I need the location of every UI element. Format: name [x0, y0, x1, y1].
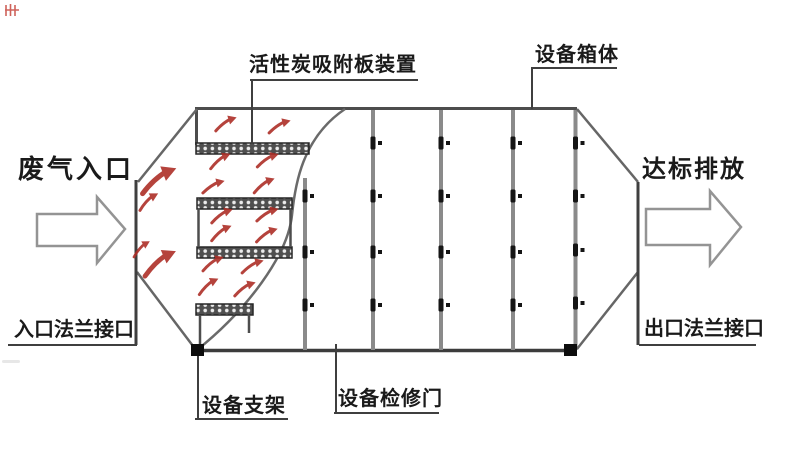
carbon-plate	[197, 247, 292, 258]
inlet-funnel	[137, 109, 197, 350]
flow-arrow-icon	[196, 276, 221, 295]
label-compliant-discharge: 达标排放	[642, 156, 746, 182]
diagram-canvas: 废气入口 活性炭吸附板装置 设备箱体 达标排放 入口法兰接口 出口法兰接口 设备…	[0, 0, 808, 465]
carbon-plate	[196, 143, 309, 154]
label-waste-gas-inlet: 废气入口	[18, 156, 134, 185]
door-hinges	[303, 137, 585, 312]
label-inlet-flange: 入口法兰接口	[14, 318, 134, 340]
carbon-plates	[196, 143, 309, 349]
carbon-plate	[197, 198, 292, 209]
label-carbon-plate-device: 活性炭吸附板装置	[249, 53, 417, 75]
flow-arrow-icon	[252, 176, 277, 193]
flow-arrow-icon	[130, 239, 153, 257]
outlet-funnel	[577, 109, 638, 349]
flow-arrow-icon	[138, 163, 180, 193]
leader-lines	[8, 68, 756, 419]
flow-arrow-icon	[268, 118, 292, 133]
flow-arrow-icon	[140, 247, 180, 277]
inlet-arrow-icon	[37, 197, 125, 263]
flow-arrow-icon	[214, 114, 238, 131]
flow-arrow-icon	[209, 223, 234, 241]
flow-arrow-icon	[202, 178, 225, 193]
flow-arrow-icon	[241, 258, 265, 273]
label-outlet-flange: 出口法兰接口	[644, 317, 764, 339]
support-foot	[564, 344, 577, 356]
carbon-plate	[196, 304, 253, 315]
flow-arrow-icon	[255, 226, 279, 242]
flow-arrow-icon	[136, 191, 162, 211]
outlet-arrow-icon	[646, 191, 741, 265]
label-access-door: 设备检修门	[338, 387, 443, 409]
label-equipment-housing: 设备箱体	[535, 43, 619, 65]
support-foot	[191, 344, 204, 356]
label-equipment-support: 设备支架	[202, 394, 286, 416]
